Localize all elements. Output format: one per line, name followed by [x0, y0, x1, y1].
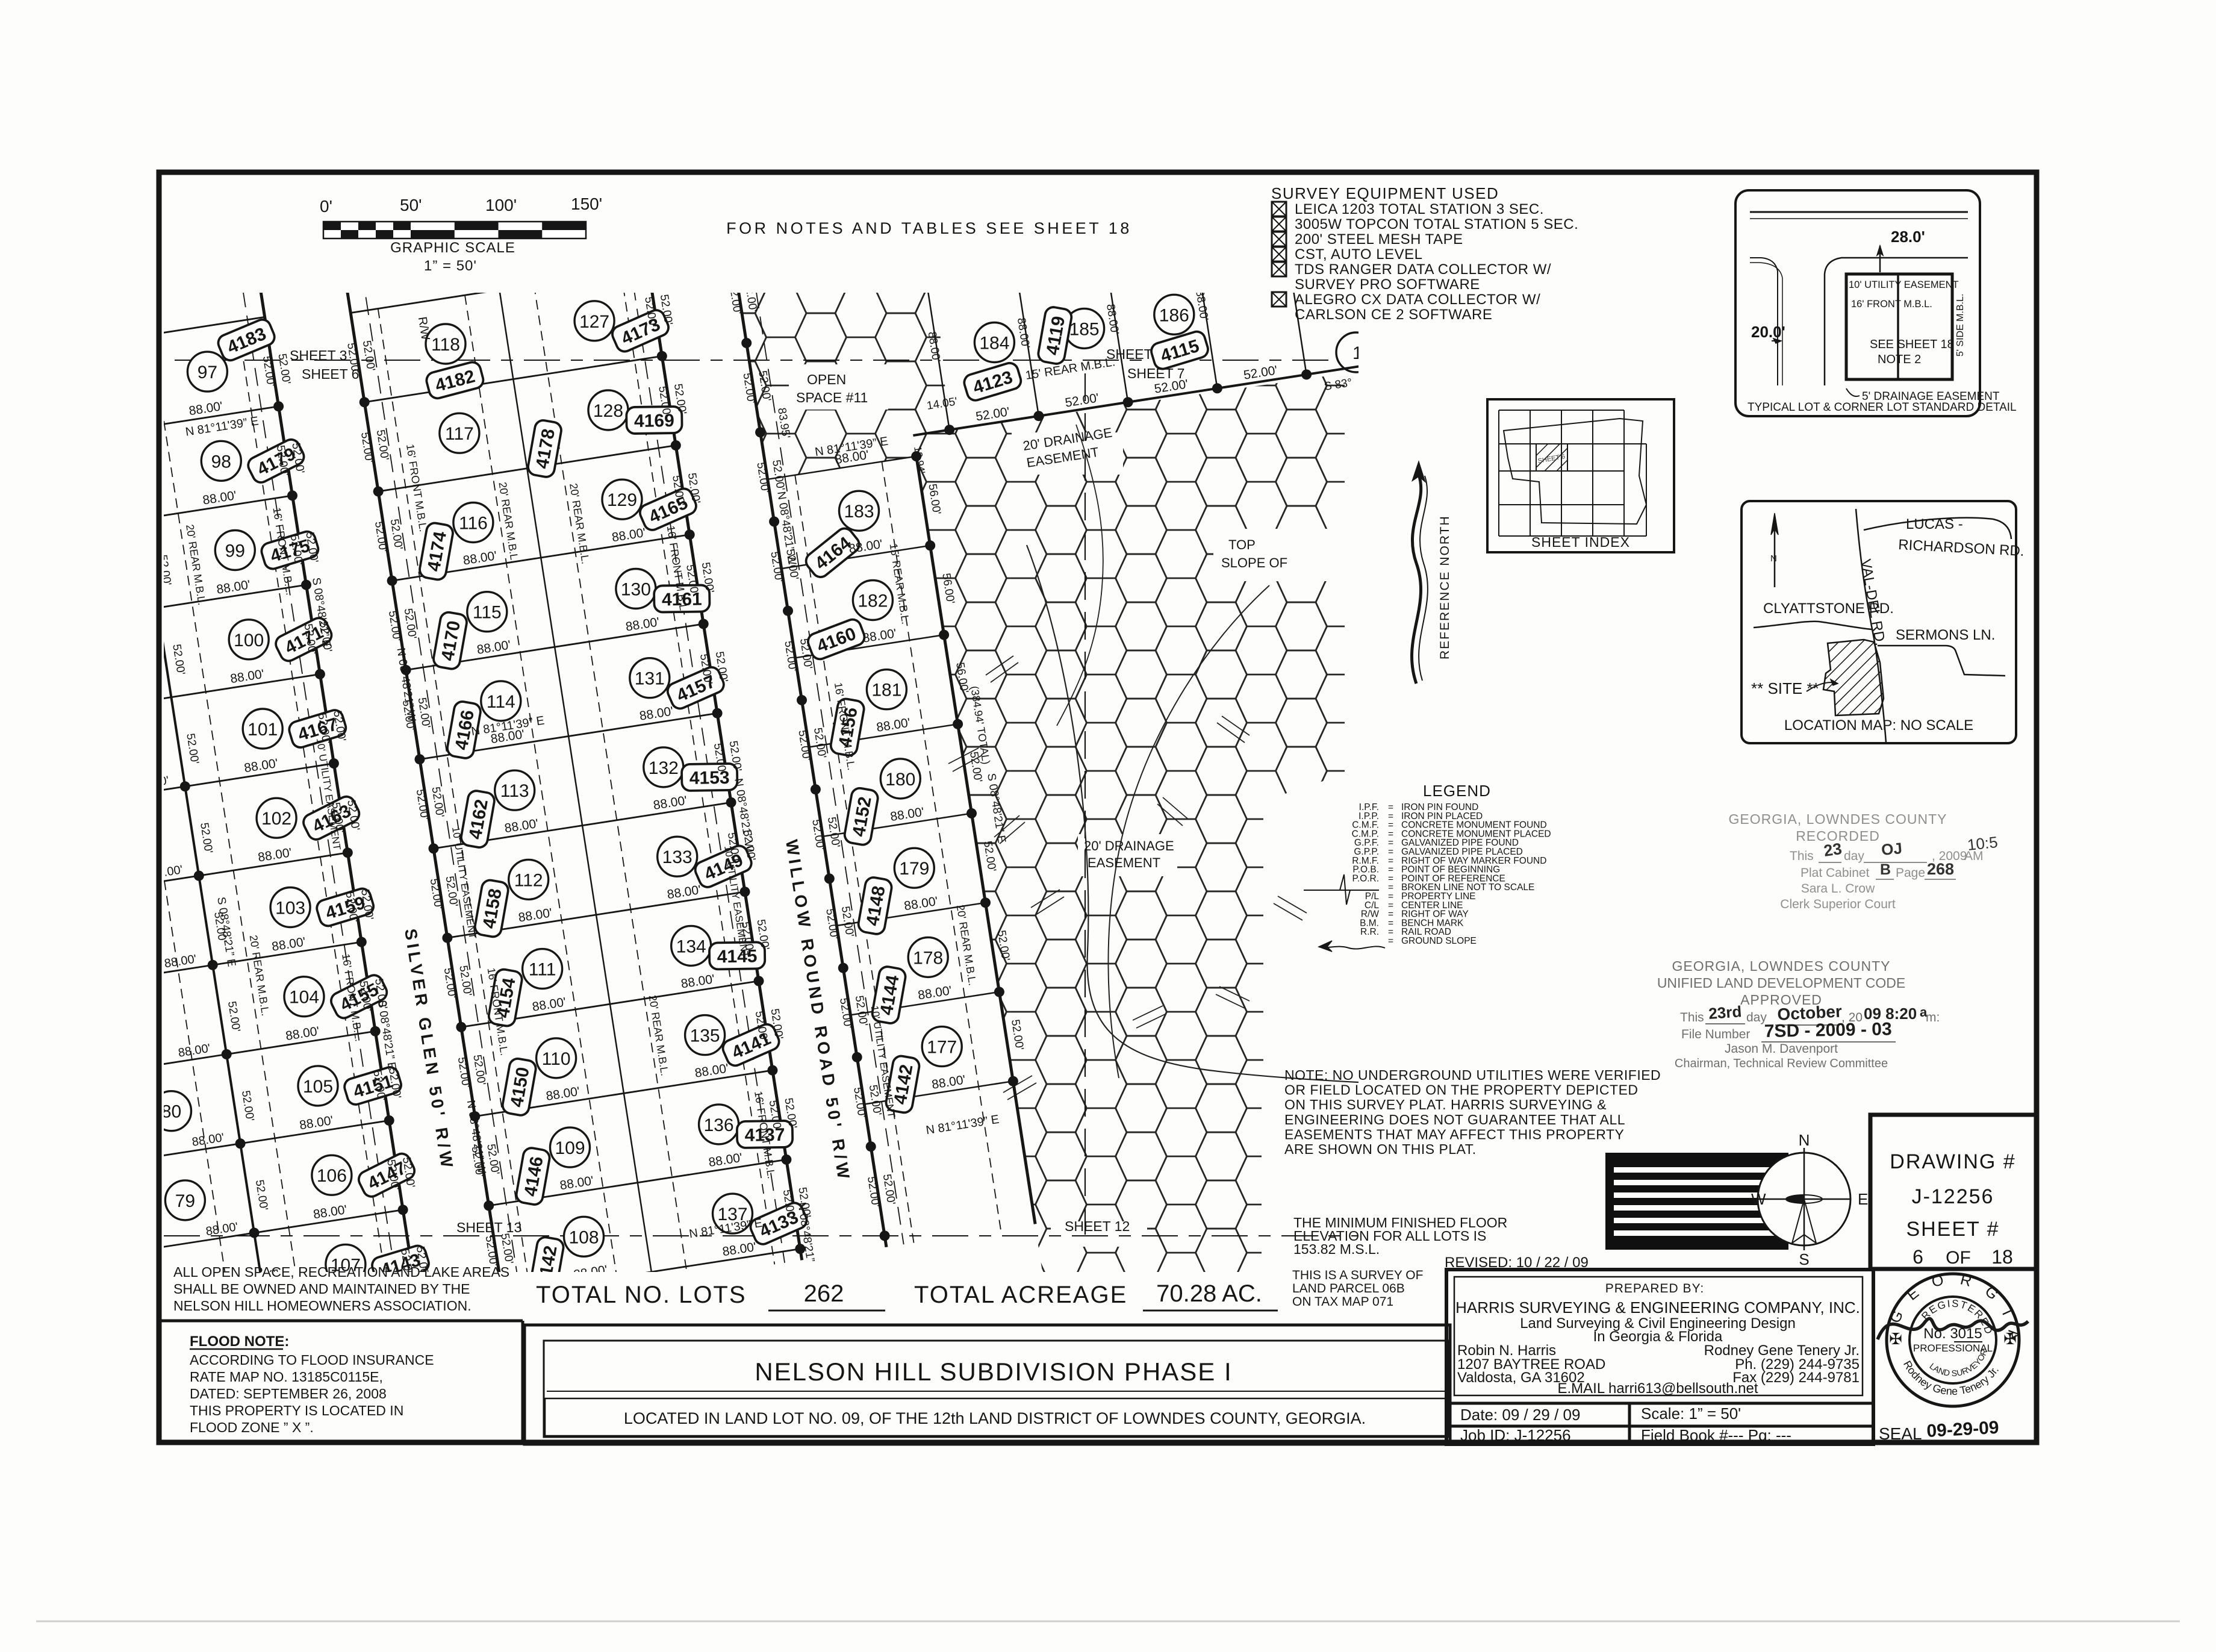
- svg-text:FLOOD NOTE:: FLOOD NOTE:: [190, 1333, 289, 1350]
- svg-text:EASEMENTS THAT MAY AFFECT THIS: EASEMENTS THAT MAY AFFECT THIS PROPERTY: [1284, 1126, 1624, 1142]
- svg-text:10' UTILITY EASEMENT: 10' UTILITY EASEMENT: [1849, 279, 1959, 290]
- svg-text:Plat Cabinet: Plat Cabinet: [1800, 866, 1870, 880]
- svg-text:130: 130: [621, 580, 651, 600]
- svg-text:ENGINEERING DOES NOT GUARANTEE: ENGINEERING DOES NOT GUARANTEE THAT ALL: [1284, 1112, 1625, 1127]
- svg-text:THIS PROPERTY IS LOCATED IN: THIS PROPERTY IS LOCATED IN: [190, 1403, 403, 1418]
- svg-text:80: 80: [161, 1102, 181, 1122]
- svg-text:115: 115: [473, 603, 502, 623]
- svg-text:182: 182: [857, 591, 888, 611]
- svg-text:100': 100': [485, 196, 517, 214]
- svg-text:=: =: [1388, 936, 1393, 946]
- svg-text:183: 183: [844, 502, 874, 522]
- svg-text:268: 268: [1927, 860, 1954, 878]
- svg-text:113: 113: [500, 781, 529, 801]
- svg-text:SHEET 3: SHEET 3: [290, 348, 347, 363]
- svg-text:50': 50': [400, 196, 422, 214]
- svg-text:GEORGIA, LOWNDES COUNTY: GEORGIA, LOWNDES COUNTY: [1672, 958, 1891, 974]
- svg-text:18: 18: [1991, 1246, 2013, 1268]
- svg-text:FLOOD ZONE ” X ”.: FLOOD ZONE ” X ”.: [190, 1420, 314, 1435]
- svg-text:150': 150': [571, 195, 602, 213]
- svg-text:97: 97: [198, 363, 217, 382]
- svg-text:112: 112: [514, 870, 543, 890]
- svg-text:E: E: [1858, 1190, 1868, 1208]
- svg-text:LUCAS -: LUCAS -: [1906, 516, 1963, 532]
- svg-text:B: B: [1880, 861, 1891, 878]
- svg-text:J-12256: J-12256: [1912, 1185, 1994, 1208]
- svg-text:20.0': 20.0': [1751, 323, 1785, 341]
- svg-text:09-29-09: 09-29-09: [1926, 1418, 2000, 1441]
- svg-text:102: 102: [261, 809, 291, 829]
- svg-text:SHEET 12: SHEET 12: [1065, 1218, 1130, 1234]
- svg-text:✠: ✠: [1889, 1330, 1902, 1348]
- svg-text:Chairman, Technical Review Com: Chairman, Technical Review Committee: [1675, 1057, 1888, 1070]
- svg-text:DATED: SEPTEMBER 26, 2008: DATED: SEPTEMBER 26, 2008: [190, 1386, 387, 1401]
- svg-text:116: 116: [459, 514, 488, 534]
- svg-text:Field Book #--- Pg: ---: Field Book #--- Pg: ---: [1641, 1426, 1791, 1444]
- svg-text:File Number: File Number: [1681, 1027, 1750, 1041]
- svg-text:P.O.R.: P.O.R.: [1352, 873, 1379, 884]
- svg-text:153.82 M.S.L.: 153.82 M.S.L.: [1293, 1241, 1380, 1257]
- svg-text:SEE SHEET 18: SEE SHEET 18: [1870, 338, 1954, 351]
- svg-text:SHEET 13: SHEET 13: [456, 1220, 521, 1235]
- svg-text:LOCATED IN LAND LOT NO. 09, OF: LOCATED IN LAND LOT NO. 09, OF THE 12th …: [624, 1409, 1366, 1427]
- svg-text:136: 136: [704, 1115, 734, 1135]
- svg-text:129: 129: [607, 490, 637, 510]
- svg-text:NELSON HILL HOMEOWNERS ASSOCIA: NELSON HILL HOMEOWNERS ASSOCIATION.: [173, 1298, 472, 1314]
- svg-text:Scale: 1” = 50': Scale: 1” = 50': [1641, 1404, 1741, 1423]
- svg-text:TYPICAL LOT & CORNER LOT STAND: TYPICAL LOT & CORNER LOT STANDARD DETAIL: [1748, 401, 2017, 414]
- svg-text:E.MAIL harri613@bellsouth.net: E.MAIL harri613@bellsouth.net: [1558, 1380, 1758, 1397]
- svg-text:79: 79: [175, 1191, 195, 1211]
- svg-text:23rd: 23rd: [1708, 1002, 1742, 1023]
- svg-text:RATE MAP NO. 13185C0115E,: RATE MAP NO. 13185C0115E,: [190, 1369, 383, 1385]
- svg-text:103: 103: [275, 899, 305, 918]
- svg-text:Sara L. Crow: Sara L. Crow: [1801, 882, 1875, 896]
- svg-text:✠: ✠: [2003, 1330, 2017, 1348]
- svg-text:N: N: [1799, 1131, 1810, 1149]
- svg-text:SHALL BE OWNED AND MAINTAINED: SHALL BE OWNED AND MAINTAINED BY THE: [173, 1281, 470, 1297]
- svg-text:FOR NOTES AND TABLES SEE: FOR NOTES AND TABLES SEE SHEET 18: [726, 219, 1132, 237]
- svg-text:CLYATTSTONE RD.: CLYATTSTONE RD.: [1763, 600, 1894, 617]
- svg-text:OJ: OJ: [1881, 839, 1903, 859]
- svg-text:SLOPE OF: SLOPE OF: [1221, 555, 1287, 570]
- svg-text:TDS RANGER DATA COLLECTOR W/: TDS RANGER DATA COLLECTOR W/: [1295, 261, 1551, 278]
- svg-text:108: 108: [568, 1227, 599, 1247]
- svg-text:185: 185: [1069, 319, 1100, 339]
- svg-text:SHEET #: SHEET #: [1906, 1218, 1999, 1241]
- svg-text:ON TAX MAP 071: ON TAX MAP 071: [1292, 1295, 1393, 1309]
- svg-text:GROUND SLOPE: GROUND SLOPE: [1401, 936, 1477, 946]
- svg-text:200' STEEL MESH TAPE: 200' STEEL MESH TAPE: [1295, 231, 1463, 248]
- svg-text:Clerk Superior Court: Clerk Superior Court: [1780, 897, 1896, 911]
- svg-text:LAND PARCEL 06B: LAND PARCEL 06B: [1292, 1282, 1405, 1295]
- svg-text:R.R.: R.R.: [1360, 927, 1379, 937]
- svg-text:117: 117: [445, 424, 474, 444]
- svg-text:3005W TOPCON TOTAL STATION 5 S: 3005W TOPCON TOTAL STATION 5 SEC.: [1295, 216, 1578, 232]
- svg-text:This: This: [1680, 1011, 1704, 1024]
- svg-text:111: 111: [529, 960, 556, 980]
- svg-text:177: 177: [927, 1038, 957, 1058]
- svg-text:118: 118: [431, 335, 460, 355]
- svg-text:SEAL: SEAL: [1879, 1424, 1922, 1443]
- svg-text:No. 3015: No. 3015: [1923, 1326, 1982, 1342]
- svg-text:28.0': 28.0': [1891, 228, 1925, 246]
- svg-text:NELSON HILL SUBDIVISION PHA: NELSON HILL SUBDIVISION PHASE I: [755, 1357, 1232, 1386]
- svg-text:99: 99: [225, 541, 245, 561]
- svg-text:day: day: [1844, 849, 1864, 863]
- svg-text:m:: m:: [1926, 1011, 1940, 1024]
- svg-text:ON THIS SURVEY PLAT. HARRIS SU: ON THIS SURVEY PLAT. HARRIS SURVEYING &: [1284, 1097, 1607, 1112]
- svg-text:101: 101: [247, 720, 278, 740]
- svg-text:131: 131: [635, 669, 665, 689]
- svg-text:133: 133: [662, 847, 692, 867]
- svg-text:GEORGIA, LOWNDES COUNTY: GEORGIA, LOWNDES COUNTY: [1729, 811, 1947, 827]
- svg-text:CARLSON CE 2 SOFTWARE: CARLSON CE 2 SOFTWARE: [1295, 307, 1492, 323]
- svg-text:HARRIS SURVEYING & ENGINEERING: HARRIS SURVEYING & ENGINEERING COMPANY, …: [1455, 1298, 1860, 1317]
- svg-text:110: 110: [542, 1049, 571, 1069]
- svg-text:OF: OF: [1946, 1248, 1971, 1268]
- svg-text:GRAPHIC SCALE: GRAPHIC SCALE: [390, 240, 515, 256]
- svg-text:REFERENCE NORTH: REFERENCE NORTH: [1438, 515, 1452, 659]
- svg-text:ARE SHOWN ON THIS PLAT.: ARE SHOWN ON THIS PLAT.: [1284, 1141, 1477, 1157]
- svg-text:20' DRAINAGE: 20' DRAINAGE: [1084, 838, 1174, 853]
- svg-text:AM: AM: [1964, 849, 1984, 863]
- svg-text:180: 180: [885, 770, 915, 790]
- svg-text:135: 135: [690, 1026, 720, 1046]
- svg-text:LEICA 1203 TOTAL STATION 3 SEC: LEICA 1203 TOTAL STATION 3 SEC.: [1295, 201, 1544, 217]
- svg-text:16' FRONT M.B.L.: 16' FRONT M.B.L.: [1851, 299, 1932, 310]
- svg-text:TOTAL ACREAGE: TOTAL ACREAGE: [914, 1282, 1127, 1308]
- svg-text:Page: Page: [1896, 866, 1925, 880]
- svg-text:106: 106: [317, 1166, 347, 1186]
- svg-text:23: 23: [1823, 840, 1843, 860]
- svg-text:132: 132: [649, 758, 679, 778]
- svg-text:6: 6: [1913, 1246, 1923, 1268]
- svg-text:S: S: [1799, 1250, 1809, 1268]
- svg-text:70.28 AC.: 70.28 AC.: [1156, 1280, 1262, 1307]
- svg-text:LOCATION MAP: NO SCALE: LOCATION MAP: NO SCALE: [1784, 717, 1973, 734]
- svg-text:Date: 09 / 29 / 09: Date: 09 / 29 / 09: [1460, 1406, 1580, 1424]
- svg-text:OR FIELD LOCATED ON THE PROPER: OR FIELD LOCATED ON THE PROPERTY DEPICTE…: [1284, 1082, 1639, 1098]
- svg-text:127: 127: [579, 312, 609, 332]
- svg-text:100: 100: [234, 631, 264, 650]
- svg-text:5' SIDE M.B.L.: 5' SIDE M.B.L.: [1955, 294, 1965, 357]
- svg-text:NOTE: NO UNDERGROUND UTILITIE: NOTE: NO UNDERGROUND UTILITIES WERE VERI…: [1284, 1067, 1661, 1083]
- svg-text:ALEGRO CX DATA COLLECTOR W/: ALEGRO CX DATA COLLECTOR W/: [1295, 291, 1540, 308]
- svg-text:SURVEY EQUIPMENT USED: SURVEY EQUIPMENT USED: [1271, 184, 1499, 202]
- svg-text:Job ID: J-12256: Job ID: J-12256: [1460, 1426, 1571, 1444]
- svg-text:TOP: TOP: [1228, 537, 1256, 552]
- svg-text:128: 128: [593, 401, 623, 421]
- svg-text:114: 114: [487, 692, 515, 712]
- svg-text:This: This: [1790, 849, 1814, 863]
- svg-text:0': 0': [320, 197, 332, 216]
- svg-text:262: 262: [804, 1280, 844, 1307]
- svg-text:SURVEY PRO SOFTWARE: SURVEY PRO SOFTWARE: [1295, 276, 1480, 293]
- svg-text:OPEN: OPEN: [807, 372, 846, 387]
- svg-text:105: 105: [303, 1077, 333, 1097]
- svg-text:98: 98: [211, 452, 231, 472]
- svg-text:LEGEND: LEGEND: [1423, 782, 1491, 800]
- svg-text:** SITE **: ** SITE **: [1751, 679, 1819, 697]
- svg-text:TOTAL NO. LOTS: TOTAL NO. LOTS: [536, 1282, 747, 1308]
- svg-text:THIS IS A SURVEY OF: THIS IS A SURVEY OF: [1292, 1268, 1423, 1282]
- svg-text:ALL OPEN SPACE, RECREATION AND: ALL OPEN SPACE, RECREATION AND LAKE AREA…: [173, 1264, 509, 1280]
- svg-text:109: 109: [555, 1138, 585, 1158]
- svg-text:N: N: [1770, 553, 1777, 564]
- svg-text:SHEET INDEX: SHEET INDEX: [1531, 534, 1630, 550]
- svg-text:SPACE #11: SPACE #11: [796, 390, 868, 405]
- svg-text:104: 104: [289, 988, 319, 1008]
- svg-text:ACCORDING TO FLOOD INSURANCE: ACCORDING TO FLOOD INSURANCE: [190, 1352, 434, 1368]
- svg-text:1” = 50': 1” = 50': [424, 258, 477, 274]
- svg-text:186: 186: [1159, 305, 1189, 325]
- svg-text:PREPARED BY:: PREPARED BY:: [1605, 1282, 1705, 1295]
- svg-text:UNIFIED LAND DEVELOPMENT CODE: UNIFIED LAND DEVELOPMENT CODE: [1657, 975, 1905, 991]
- svg-text:178: 178: [913, 948, 943, 968]
- svg-text:184: 184: [979, 334, 1009, 354]
- svg-text:NOTE 2: NOTE 2: [1878, 353, 1921, 366]
- svg-text:EASEMENT: EASEMENT: [1088, 855, 1160, 870]
- svg-text:SERMONS LN.: SERMONS LN.: [1896, 627, 1995, 643]
- svg-text:179: 179: [899, 859, 929, 879]
- svg-text:181: 181: [871, 681, 901, 700]
- svg-text:7SD - 2009 - 03: 7SD - 2009 - 03: [1764, 1019, 1892, 1041]
- svg-text:CST, AUTO LEVEL: CST, AUTO LEVEL: [1295, 246, 1422, 263]
- svg-text:134: 134: [676, 937, 706, 956]
- svg-text:DRAWING #: DRAWING #: [1890, 1150, 2015, 1173]
- svg-text:Jason M. Davenport: Jason M. Davenport: [1725, 1042, 1838, 1056]
- svg-text:W: W: [1751, 1190, 1766, 1208]
